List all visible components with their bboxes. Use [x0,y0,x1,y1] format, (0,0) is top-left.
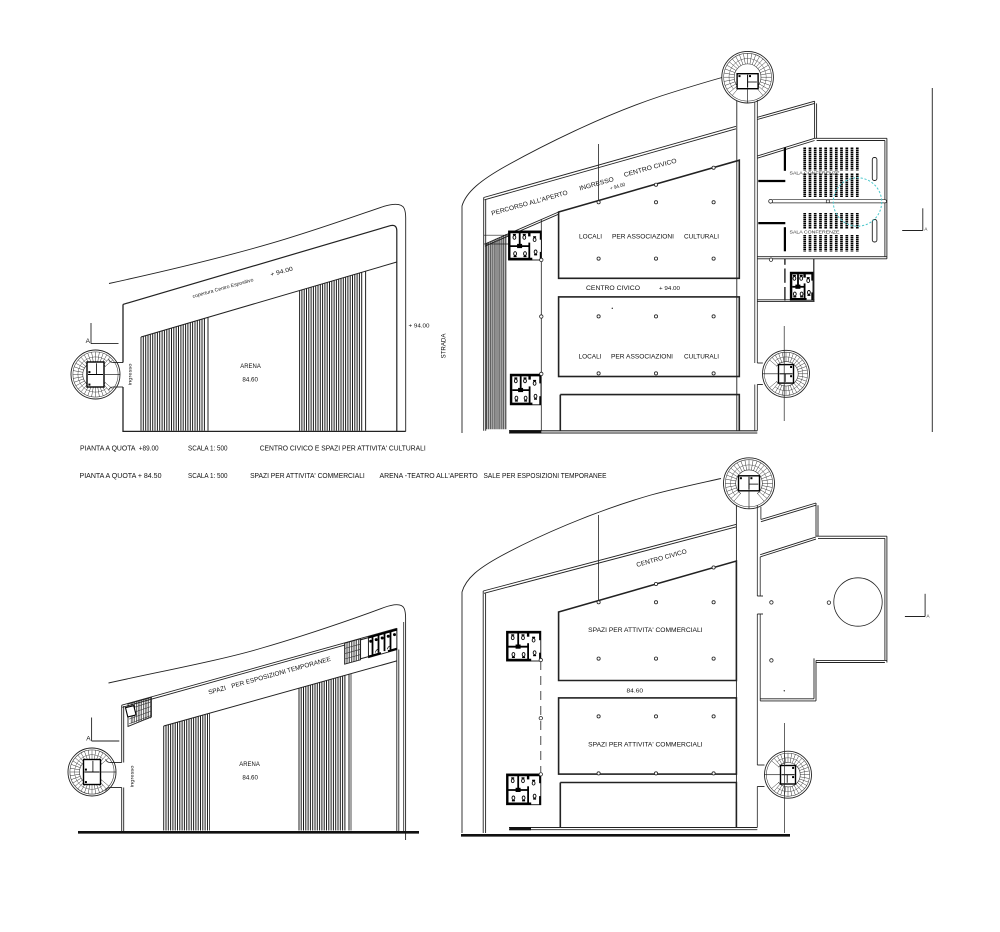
svg-text:PIANTA A QUOTA + 84.50: PIANTA A QUOTA + 84.50 [80,473,162,480]
svg-text:84.60: 84.60 [627,689,644,695]
svg-text:ARENA -TEATRO ALL'APERTO: ARENA -TEATRO ALL'APERTO [380,473,479,480]
svg-text:PIANTA A QUOTA: PIANTA A QUOTA [80,446,136,453]
svg-text:CULTURALI: CULTURALI [684,234,719,241]
svg-text:ARENA: ARENA [239,761,260,768]
svg-text:PER ASSOCIAZIONI: PER ASSOCIAZIONI [612,234,674,241]
svg-text:+ 94.00: + 94.00 [409,324,430,330]
svg-text:ARENA: ARENA [240,363,261,370]
svg-text:Ingresso: Ingresso [128,363,134,385]
svg-text:84.60: 84.60 [242,377,258,384]
svg-text:SPAZI PER ATTIVITA' COMMERCIAL: SPAZI PER ATTIVITA' COMMERCIALI [588,627,703,634]
svg-text:+89.00: +89.00 [139,446,159,453]
svg-text:SPAZI PER ATTIVITA' COMMERCIAL: SPAZI PER ATTIVITA' COMMERCIALI [588,742,703,749]
svg-text:A: A [86,338,91,345]
svg-text:SALA CONFERENZE: SALA CONFERENZE [790,230,840,235]
svg-text:CULTURALI: CULTURALI [684,354,719,361]
svg-text:SALE PER ESPOSIZIONI TEMPORANE: SALE PER ESPOSIZIONI TEMPORANEE [484,473,607,480]
svg-text:PER ASSOCIAZIONI: PER ASSOCIAZIONI [611,354,673,361]
svg-text:+ 94.00: + 94.00 [659,286,680,292]
svg-text:STRADA: STRADA [441,333,448,359]
svg-text:SALA CONFERENZE: SALA CONFERENZE [790,171,840,176]
svg-text:SPAZI PER ATTIVITA' COMMERCIAL: SPAZI PER ATTIVITA' COMMERCIALI [250,473,365,480]
svg-text:CENTRO CIVICO E SPAZI PER ATTI: CENTRO CIVICO E SPAZI PER ATTIVITA' CULT… [260,446,426,453]
svg-text:A: A [924,227,927,232]
svg-text:Ingresso: Ingresso [130,765,136,787]
svg-text:84.60: 84.60 [242,775,258,782]
svg-text:CENTRO CIVICO: CENTRO CIVICO [586,285,640,292]
svg-text:LOCALI: LOCALI [579,234,602,241]
svg-text:A: A [927,614,930,619]
svg-text:LOCALI: LOCALI [579,354,602,361]
svg-text:SCALA 1: 500: SCALA 1: 500 [188,446,228,453]
svg-text:SCALA 1: 500: SCALA 1: 500 [188,473,228,480]
svg-text:A: A [86,736,91,743]
